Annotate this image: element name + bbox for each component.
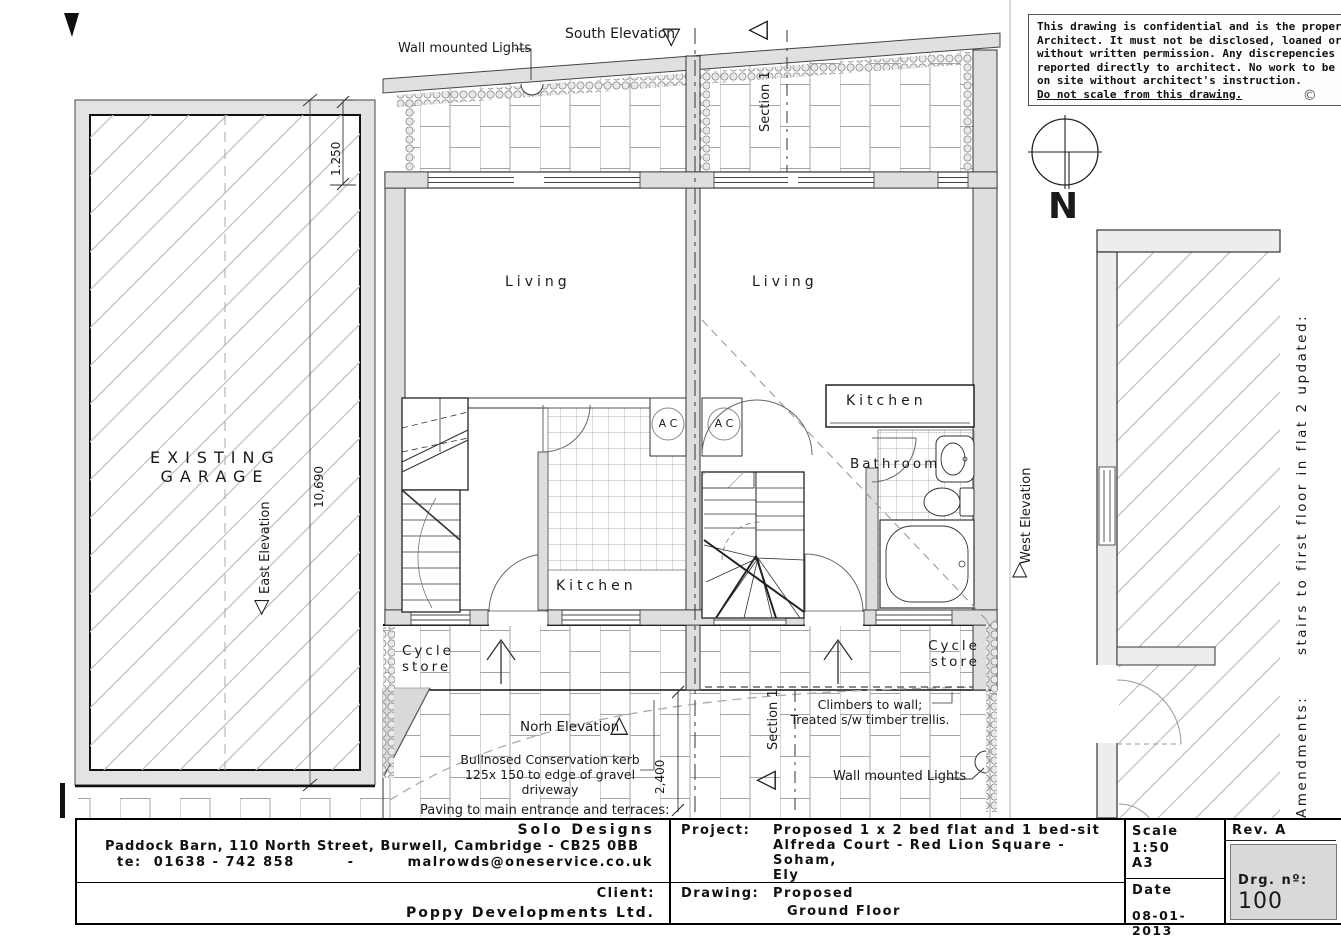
- client-label: Client:: [77, 886, 667, 901]
- drawing-sheet: Wall mounted Lights South Elevation ▽ ◁ …: [0, 0, 1341, 947]
- drg-number-box: Drg. nº: 100: [1230, 844, 1337, 920]
- drg-number: 100: [1238, 889, 1283, 914]
- sheet-corner-mark: [64, 13, 79, 37]
- cycle-store-right-label: Cyclestore: [918, 638, 980, 670]
- notice-no-scale: Do not scale from this drawing.: [1037, 88, 1341, 102]
- project-line2: Alfreda Court - Red Lion Square - Soham,: [773, 838, 1121, 868]
- south-elevation-marker-icon: ▽: [662, 24, 680, 48]
- drawing-line1: Proposed: [773, 886, 854, 901]
- kerb-line2: 125x 150 to edge of gravel driveway: [465, 767, 635, 797]
- drawing-line2: Ground Floor: [787, 904, 1121, 919]
- climbers-line2: Treated s/w timber trellis.: [790, 712, 949, 727]
- notice-line1: This drawing is confidential and is the …: [1037, 20, 1341, 34]
- kerb-note: Bullnosed Conservation kerb125x 150 to e…: [450, 752, 650, 797]
- company-tel: te: 01638 - 742 858: [117, 855, 295, 870]
- section1-top-label: Section 1: [758, 62, 773, 132]
- toilet-bowl: [924, 488, 960, 516]
- east-elevation-marker-icon: ▽: [254, 596, 269, 616]
- west-elevation-label: West Elevation: [1019, 462, 1034, 564]
- drawing-cell: Drawing: Proposed Ground Floor: [681, 886, 1121, 919]
- notice-line4: reported directly to architect. No work …: [1037, 61, 1341, 75]
- north-compass: [1028, 115, 1102, 189]
- cycle-right-line1: Cycle: [928, 638, 980, 654]
- section1-top-marker-icon: ◁: [748, 16, 768, 42]
- drawing-label: Drawing:: [681, 886, 773, 901]
- project-line1: Proposed 1 x 2 bed flat and 1 bed-sit: [773, 823, 1100, 838]
- project-label: Project:: [681, 823, 773, 838]
- climbers-line1: Climbers to wall;: [818, 697, 923, 712]
- party-wall: [686, 56, 700, 690]
- garage-width-dim: 1.250: [329, 116, 343, 176]
- wall-lights-top-label: Wall mounted Lights: [398, 41, 531, 56]
- east-elevation-label: East Elevation: [258, 488, 273, 594]
- company-contact: te: 01638 - 742 858 - malrowds@oneservic…: [77, 854, 667, 870]
- project-cell: Project: Proposed 1 x 2 bed flat and 1 b…: [681, 823, 1121, 883]
- kitchen-right-label: Kitchen: [846, 393, 927, 409]
- east-wall: [973, 50, 997, 690]
- notice-line2: Architect. It must not be disclosed, loa…: [1037, 34, 1341, 48]
- stairs-right-flat: [702, 472, 804, 618]
- toilet-cistern: [960, 488, 974, 516]
- kitchen-left-label: Kitchen: [556, 578, 637, 594]
- company-address: Paddock Barn, 110 North Street, Burwell,…: [77, 839, 667, 854]
- section1-bottom-label: Section 1: [766, 688, 781, 750]
- bathroom-label: Bathroom: [850, 456, 940, 472]
- contact-separator: -: [348, 855, 355, 870]
- garage-line1: EXISTING: [150, 448, 281, 467]
- kerb-line1: Bullnosed Conservation kerb: [460, 752, 639, 767]
- scale-cell: Scale 1:50 A3: [1132, 824, 1222, 871]
- tb-divider-2: [1124, 820, 1126, 923]
- wall-lights-bottom-label: Wall mounted Lights: [833, 769, 966, 784]
- cycle-left-line2: store: [402, 659, 451, 675]
- existing-garage-label: EXISTINGGARAGE: [150, 448, 280, 486]
- copyright-icon: ©: [1305, 90, 1315, 104]
- scale-value: 1:50: [1132, 841, 1222, 856]
- cycle-right-line2: store: [931, 654, 980, 670]
- cycle-store-left-label: Cyclestore: [402, 643, 454, 675]
- project-line3: Ely: [773, 868, 1121, 883]
- scale-label: Scale: [1132, 824, 1222, 839]
- client-cell: Client: Poppy Developments Ltd.: [77, 886, 667, 921]
- garage-line2: GARAGE: [161, 467, 270, 486]
- date-label: Date: [1132, 883, 1222, 898]
- date-value: 08-01-2013: [1132, 908, 1222, 938]
- tb-divider-1: [669, 820, 671, 923]
- notice-line5: on site without architect's instruction.: [1037, 74, 1341, 88]
- ac-left-label: A C: [652, 417, 684, 430]
- driveway-dim: 2,400: [653, 736, 667, 794]
- title-block: Solo Designs Paddock Barn, 110 North Str…: [75, 818, 1341, 925]
- garage-length-dim: 10,690: [312, 446, 326, 508]
- date-cell: Date 08-01-2013: [1132, 883, 1222, 938]
- living-left-label: Living: [505, 274, 571, 290]
- company-email: malrowds@oneservice.co.uk: [407, 855, 653, 870]
- paper-size: A3: [1132, 856, 1222, 871]
- confidentiality-notice: This drawing is confidential and is the …: [1028, 14, 1341, 106]
- company-name: Solo Designs: [77, 822, 667, 838]
- north-elevation-marker-icon: △: [610, 712, 628, 736]
- stairs-left-flat: [402, 398, 468, 612]
- drg-label: Drg. nº:: [1238, 873, 1308, 888]
- adjacent-building-plan: [1095, 230, 1280, 844]
- north-elevation-label: Norh Elevation: [520, 719, 619, 735]
- company-cell: Solo Designs Paddock Barn, 110 North Str…: [77, 822, 667, 870]
- cycle-left-line1: Cycle: [402, 643, 454, 659]
- south-elevation-label: South Elevation: [565, 26, 675, 42]
- living-right-label: Living: [752, 274, 818, 290]
- flat-left-interior: [402, 398, 686, 612]
- climber-planting-strip: [986, 620, 997, 812]
- compass-north-label: N: [1048, 186, 1078, 227]
- paving-note: Paving to main entrance and terraces:: [420, 803, 670, 818]
- client-name: Poppy Developments Ltd.: [77, 905, 667, 921]
- rev-value: Rev. A: [1224, 820, 1336, 841]
- amendments-note: Amendments: stairs to first floor in fla…: [1294, 338, 1310, 818]
- flat-right-interior: [702, 320, 996, 630]
- entrance-door-right: [805, 554, 863, 612]
- ac-right-label: A C: [708, 417, 740, 430]
- section1-bottom-marker-icon: ◁: [756, 766, 776, 792]
- west-elevation-marker-icon: △: [1012, 558, 1027, 578]
- notice-line3: without written permission. Any discrepe…: [1037, 47, 1341, 61]
- climbers-note: Climbers to wall;Treated s/w timber trel…: [790, 697, 950, 727]
